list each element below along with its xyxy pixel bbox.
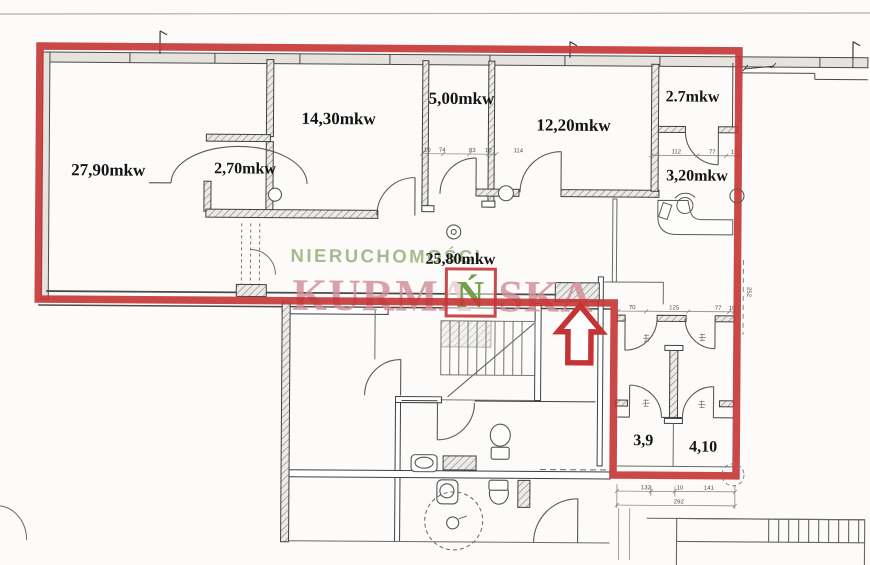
dim-label: 10 <box>677 485 684 491</box>
room-label-2-70: 2,70mkw <box>214 160 276 177</box>
wardrobe-dashed <box>241 223 259 289</box>
dim-label: 292 <box>674 499 685 505</box>
dim-label: 10 <box>424 148 431 154</box>
dim-label: 77 <box>709 150 716 156</box>
room-label-3-9: 3,9 <box>633 432 653 449</box>
room-label-25-80: 25,80mkw <box>425 251 495 268</box>
dim-label: 112 <box>671 149 681 155</box>
plan-details <box>0 182 744 545</box>
scanned-floor-plan: 10 74 83 10 114 112 77 10 70 125 77 10 1… <box>0 0 870 565</box>
sheet-border-line <box>0 13 870 14</box>
dim-label: 70 <box>629 305 636 311</box>
dim-label: 114 <box>513 148 523 154</box>
dim-label: 125 <box>669 305 680 311</box>
room-label-14-30: 14,30mkw <box>301 109 376 129</box>
room-label-4-10: 4,10 <box>689 439 717 456</box>
bathroom-fixtures <box>410 424 530 551</box>
room-label-2-7: 2.7mkw <box>666 88 720 105</box>
desk-furniture <box>658 193 733 235</box>
dim-label: 83 <box>469 148 476 154</box>
room-label-3-20: 3,20mkw <box>666 167 728 184</box>
room-label-27-90: 27,90mkw <box>71 160 146 180</box>
dim-label: 252 <box>745 287 751 298</box>
floor-plan-canvas: 10 74 83 10 114 112 77 10 70 125 77 10 1… <box>0 0 870 565</box>
stairwell <box>441 321 536 401</box>
watermark-logo-letter: Ń <box>456 274 484 316</box>
dim-label: 132 <box>641 485 652 491</box>
dim-label: 10 <box>485 148 492 154</box>
terrace-railing <box>646 518 864 565</box>
dim-label: 141 <box>704 486 715 492</box>
room-label-12-20: 12,20mkw <box>536 115 611 135</box>
room-label-5-00: 5,00mkw <box>429 89 495 108</box>
dim-label: 74 <box>439 148 446 154</box>
dim-label: 77 <box>715 306 722 312</box>
